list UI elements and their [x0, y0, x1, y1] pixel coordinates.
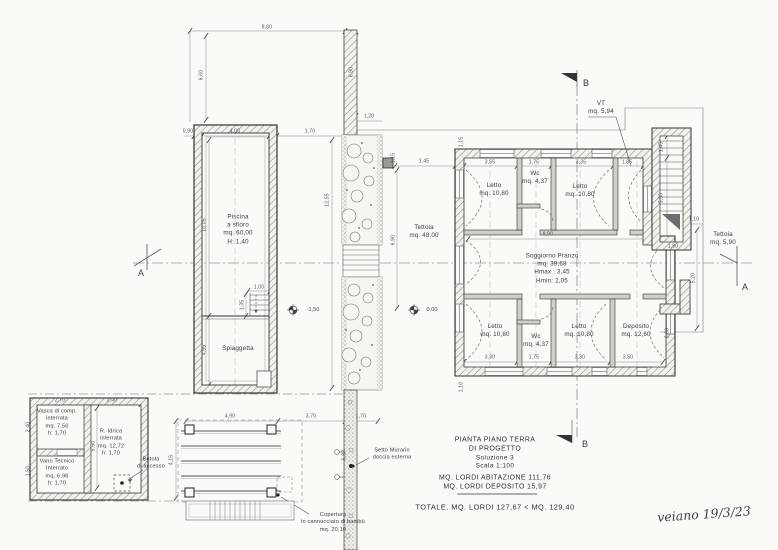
- dimension-label: 1,35: [241, 300, 246, 311]
- title-line-4: Scala 1:100: [476, 463, 515, 470]
- dimension-label: 8,90: [543, 233, 554, 238]
- dimension-label: 1,80: [668, 245, 679, 250]
- dimension-label: 10,05: [203, 218, 208, 232]
- dimension-label: 1,75: [529, 161, 540, 166]
- dimension-label: 6,90: [392, 235, 397, 246]
- dimension-label: 4,00: [230, 130, 241, 135]
- dimension-label: 5,80: [343, 450, 348, 461]
- floor-plan-sheet: Piscina a sfioro mq. 60,00 H: 1,40 Spiag…: [0, 0, 778, 550]
- dimension-label: 3,60: [666, 328, 671, 339]
- dimension-label: 1,20: [364, 115, 375, 120]
- dimension-label: 1,00: [254, 286, 265, 291]
- dimension-label: 2,40: [107, 399, 118, 404]
- title-area-abitazione: MQ. LORDI ABITAZIONE 111,76: [439, 475, 551, 482]
- dimension-label: 1,85: [622, 161, 633, 166]
- dimension-label: 1,45: [419, 160, 430, 165]
- dimension-label: 4,95: [203, 345, 208, 356]
- section-letter-b-top: B: [583, 78, 589, 88]
- dimension-label: 4,90: [225, 415, 236, 420]
- pergola-steps: [186, 501, 294, 520]
- title-line-2: DI PROGETTO: [469, 446, 521, 453]
- floor-plan-linework: [0, 0, 778, 550]
- room-label-wc-bottom: Wc mq. 4,37: [523, 333, 549, 349]
- dimension-label: 8,80: [262, 26, 273, 31]
- dimension-label: 1,45: [660, 142, 665, 153]
- dimension-label: 6,90: [350, 67, 355, 78]
- pool-ladder: [257, 371, 271, 387]
- dimension-label: 3,50: [623, 356, 634, 361]
- room-label-vasca: Vasca di comp. interrata mq. 7,56 h: 1,7…: [37, 408, 77, 437]
- room-label-vano-tecnico: Vano Tecnico Interrato mq. 6,96 h: 1,70: [40, 458, 75, 487]
- setto-arrow-dot: [352, 465, 355, 468]
- level-marker-tettoia: [408, 304, 420, 316]
- room-label-letto-tl: Letto mq. 10,80: [479, 182, 508, 198]
- dimension-label: 3,30: [575, 356, 586, 361]
- room-label-wc-top: Wc mq. 4,37: [522, 170, 548, 186]
- dimension-label: 5,20: [692, 273, 697, 284]
- dimension-label: 1,10: [460, 382, 465, 393]
- title-area-deposito: MQ. LORDI DEPOSITO 15,97: [443, 484, 546, 491]
- dimension-label: 5,50: [660, 193, 665, 204]
- room-label-letto-tr: Letto mq. 10,80: [565, 183, 594, 199]
- pool-stairs: [250, 293, 269, 316]
- section-flag-b-top: [561, 70, 577, 86]
- section-letter-b-bottom: B: [582, 439, 588, 449]
- room-label-tettoia-right: Tettoia mq. 5,90: [710, 231, 736, 247]
- stone-strip: [335, 30, 393, 550]
- room-label-deposito: Deposito mq. 12,60: [621, 323, 650, 339]
- title-line-1: PIANTA PIANO TERRA: [455, 437, 536, 444]
- strip-steps: [343, 245, 379, 277]
- dimension-label: 3,30: [485, 356, 496, 361]
- section-flag-b-bottom: [556, 420, 572, 443]
- dimension-label: 0,90: [183, 130, 194, 135]
- garden-bed-top: [342, 135, 382, 245]
- room-label-tettoia-main: Tettoia mq. 48,00: [409, 224, 438, 240]
- label-botola: Botola di accesso: [137, 457, 165, 472]
- elevation-value-tettoia: 0,00: [427, 307, 438, 313]
- section-letter-a-left: A: [138, 268, 144, 278]
- section-flag-a-left: [134, 244, 161, 270]
- dimension-label: 3,35: [576, 161, 587, 166]
- dimension-label: 3,70: [306, 415, 317, 420]
- room-label-letto-br: Letto mq. 10,80: [564, 323, 593, 339]
- room-label-soggiorno: Soggiorno Pranzo mq. 39,68 Hmax : 3,45 H…: [526, 253, 579, 286]
- section-lines: [28, 85, 753, 501]
- level-marker-spiaggetta: [287, 304, 299, 316]
- dimension-label: 1,10: [689, 218, 700, 223]
- room-label-letto-bl: Letto mq. 10,80: [480, 323, 509, 339]
- pergola: [178, 420, 309, 514]
- garden-bed-bottom: [342, 277, 382, 390]
- title-total: TOTALE. MQ. LORDI 127,67 < MQ. 129,40: [415, 503, 574, 512]
- room-label-r-idrica: R. Idrica interrata mq. 12,72 h: 1,70: [98, 428, 124, 457]
- dimension-label: 6,60: [200, 70, 205, 81]
- dimension-label: 3,55: [485, 161, 496, 166]
- dimension-label: 12,55: [326, 193, 331, 207]
- dimension-label: 2,70: [55, 399, 66, 404]
- dimension-label: 1,75: [529, 356, 540, 361]
- label-copertura: Copertura in cannucciato di bambù mq. 20…: [301, 512, 365, 534]
- section-letter-a-right: A: [742, 282, 748, 292]
- dimension-label: 1,15: [392, 153, 397, 164]
- section-flag-a-right: [720, 246, 737, 286]
- dimension-label: 5,50: [92, 441, 97, 452]
- dimension-label: 1,70: [305, 130, 316, 135]
- room-label-spiaggetta: Spiaggetta: [222, 345, 254, 353]
- dimension-label: 4,15: [170, 455, 175, 466]
- room-label-vt: VT mq. 5,94: [588, 100, 614, 116]
- dimension-label: 1,50: [27, 466, 32, 477]
- title-line-3: Soluzione 3: [476, 455, 514, 462]
- elevation-value-spiaggetta: -1,50: [307, 307, 320, 313]
- dimension-label: 1,15: [460, 137, 465, 148]
- dimension-label: 2,40: [27, 422, 32, 433]
- room-label-piscina: Piscina a sfioro mq. 60,00 H: 1,40: [223, 214, 252, 247]
- label-setto-murario: Setto Murario doccia esterna: [373, 448, 411, 463]
- dimension-label: 1,70: [356, 415, 367, 420]
